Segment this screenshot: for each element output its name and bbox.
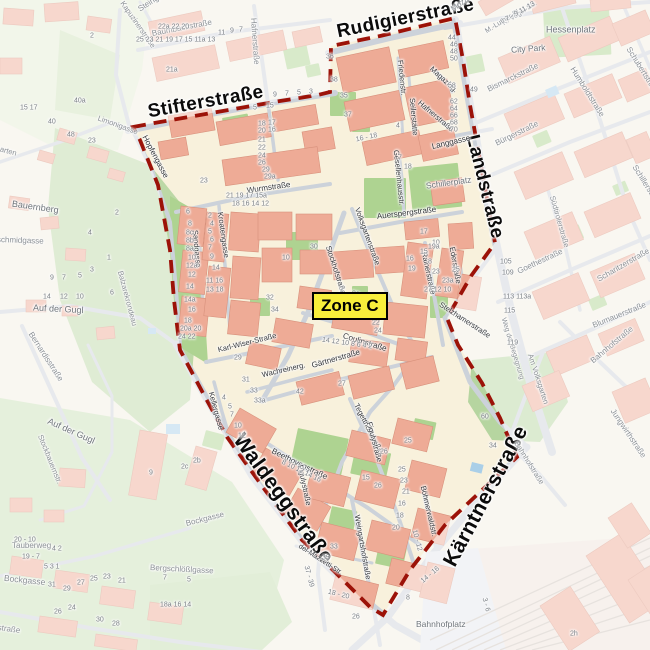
- house-number: 4: [396, 123, 400, 130]
- house-number: 8: [406, 595, 410, 602]
- street-label: Jungwirthstraße: [609, 408, 647, 460]
- house-number: 33: [250, 388, 258, 395]
- house-number: 17: [268, 120, 276, 127]
- street-label: schmidgasse: [0, 236, 44, 246]
- house-number: 11 16: [206, 278, 223, 285]
- street-label: Schillerstraße: [631, 164, 650, 210]
- house-number: 16 - 18: [355, 132, 378, 143]
- house-number: 27: [77, 580, 85, 587]
- street-label: Hafnerstraße: [249, 18, 260, 65]
- house-number: 2: [208, 213, 212, 220]
- street-label: Am Volksgarten: [526, 353, 549, 405]
- house-number: 7: [208, 245, 212, 252]
- street-label: Weingartshofstraße: [353, 514, 372, 580]
- house-number: 21 19 17 15a: [226, 193, 267, 200]
- house-number: 105: [500, 259, 512, 266]
- house-number: 14: [43, 294, 51, 301]
- street-label: Limonigasse: [97, 114, 139, 135]
- street-label: Balzarekrondeau: [116, 270, 138, 327]
- house-number: 33a: [254, 398, 266, 405]
- house-number: 21a: [166, 67, 178, 74]
- house-number: 5: [187, 577, 191, 584]
- house-number: 109: [502, 270, 514, 277]
- house-number: 49: [470, 87, 478, 94]
- house-number: 37: [344, 112, 352, 119]
- map-labels-layer: StifterstraßeRudigierstraßeLandstraßeWal…: [0, 0, 650, 650]
- house-number: 25 23 21 19 17 15 11a 13: [136, 37, 215, 44]
- house-number: 6: [186, 209, 190, 216]
- street-label: Goethestraße: [516, 248, 564, 276]
- street-label: Wachreinerg.: [261, 361, 306, 378]
- house-number: 31: [48, 582, 56, 589]
- house-number: 64: [450, 106, 458, 113]
- house-number: 6: [210, 237, 214, 244]
- house-number: 9: [273, 92, 277, 99]
- street-label: Auf der Gugl: [46, 417, 96, 446]
- house-number: 25: [452, 267, 460, 274]
- house-number: 7: [239, 27, 243, 34]
- house-number: 26: [380, 449, 388, 456]
- street-label: Scharitzerstraße: [596, 247, 650, 283]
- house-number: 5: [228, 404, 232, 411]
- house-number: 29: [234, 355, 242, 362]
- house-number: 2: [90, 33, 94, 40]
- house-number: 46: [450, 42, 458, 49]
- house-number: 9: [210, 254, 214, 261]
- house-number: 2h: [570, 631, 578, 638]
- house-number: 5: [253, 105, 257, 112]
- house-number: 13 18: [206, 287, 224, 294]
- house-number: 16: [398, 501, 406, 508]
- house-number: 68: [450, 120, 458, 127]
- house-number: 15: [266, 103, 274, 110]
- house-number: 14a: [184, 297, 196, 304]
- house-number: 8b: [186, 238, 194, 245]
- street-label: Stockbauernstr.: [37, 434, 63, 485]
- house-number: 22: [372, 320, 380, 327]
- house-number: 44: [448, 35, 456, 42]
- house-number: 1: [107, 255, 111, 262]
- house-number: 19: [408, 266, 416, 273]
- street-label: Steingasse: [137, 0, 175, 13]
- house-number: 9: [230, 28, 234, 35]
- house-number: 24 22: [178, 334, 196, 341]
- street-label: Stelzhamerstraße: [438, 301, 492, 340]
- house-number: 58: [448, 83, 456, 90]
- house-number: 7: [285, 91, 289, 98]
- house-number: 30: [96, 617, 104, 624]
- house-number: 60: [481, 414, 489, 421]
- house-number: 7: [163, 575, 167, 582]
- zone-c-label: Zone C: [312, 292, 388, 320]
- house-number: 6: [110, 290, 114, 297]
- house-number: 15: [420, 249, 428, 256]
- map-canvas: StifterstraßeRudigierstraßeLandstraßeWal…: [0, 0, 650, 650]
- house-number: 21: [402, 489, 410, 496]
- house-number: 62: [450, 99, 458, 106]
- street-label: Südtirolerstraße: [548, 195, 570, 248]
- house-number: 19 - 7: [22, 554, 40, 561]
- house-number: 23a: [442, 278, 454, 285]
- house-number: 5: [297, 90, 301, 97]
- house-number: 7: [62, 275, 66, 282]
- house-number: 18: [396, 513, 404, 520]
- house-number: 2c: [181, 464, 188, 471]
- house-number: 22: [258, 145, 266, 152]
- house-number: 10: [188, 255, 196, 262]
- house-number: 3: [309, 89, 313, 96]
- house-number: 14: [186, 284, 194, 291]
- house-number: 119: [507, 340, 518, 347]
- house-number: 25: [398, 467, 406, 474]
- street-label: Böhmerwaldstr.: [419, 485, 438, 537]
- house-number: 48: [450, 49, 458, 56]
- house-number: 18 - 20: [327, 589, 350, 601]
- street-label: Bürgerstraße: [494, 120, 539, 148]
- house-number: 9: [149, 470, 153, 477]
- house-number: 36: [326, 54, 334, 61]
- house-number: 14: [212, 265, 220, 272]
- house-number: 24: [258, 153, 266, 160]
- street-label: Auerspergstraße: [377, 206, 437, 221]
- street-label: Karl-Wiser-Straße: [217, 332, 277, 354]
- house-number: 17: [420, 229, 428, 236]
- house-number: 38: [330, 77, 338, 84]
- house-number: 24: [374, 328, 382, 335]
- house-number: 29: [63, 586, 71, 593]
- house-number: 23: [432, 269, 440, 276]
- house-number: 9: [50, 275, 54, 282]
- house-number: 23: [400, 478, 408, 485]
- house-number: 8: [188, 221, 192, 228]
- house-number: 25: [404, 438, 412, 445]
- house-number: 23: [200, 178, 208, 185]
- house-number: 14 - 16: [420, 565, 441, 584]
- house-number: 18: [258, 121, 266, 128]
- house-number: 27 12 10: [424, 287, 451, 294]
- house-number: 37 - 39: [303, 565, 315, 588]
- street-label: Bismarckstraße: [486, 62, 539, 94]
- house-number: 16: [268, 127, 276, 134]
- house-number: 24: [68, 605, 76, 612]
- house-number: 29a: [264, 174, 276, 181]
- house-number: 3 - 6: [481, 597, 491, 612]
- house-number: 12a: [186, 263, 198, 270]
- house-number: 66: [450, 113, 458, 120]
- house-number: 10 - 12: [411, 529, 423, 552]
- house-number: 15: [362, 475, 370, 482]
- house-number: 3: [90, 267, 94, 274]
- house-number: 16: [188, 307, 196, 314]
- house-number: 5: [208, 229, 212, 236]
- house-number: 4: [210, 221, 214, 228]
- street-label: Friedenstr.: [396, 60, 407, 96]
- house-number: 23: [103, 574, 111, 581]
- house-number: 19a: [428, 244, 440, 251]
- house-number: 26: [54, 609, 62, 616]
- house-number: 21: [118, 578, 126, 585]
- house-number: 7: [398, 155, 402, 162]
- house-number: 48: [67, 132, 75, 139]
- house-number: 4: [88, 230, 92, 237]
- house-number: 25: [90, 576, 98, 583]
- house-number: 8c: [186, 230, 193, 237]
- street-label: Magazing.: [428, 65, 459, 94]
- boundary-street-label: Landstraße: [463, 133, 507, 241]
- street-label: Bockgasse: [4, 574, 46, 587]
- boundary-street-label: Stifterstraße: [146, 82, 265, 121]
- house-number: 115: [504, 308, 515, 315]
- house-number: 20a 20: [180, 326, 201, 333]
- street-label: Bahnhofstraße: [589, 325, 634, 365]
- house-number: 4: [222, 395, 226, 402]
- house-number: 12: [60, 294, 68, 301]
- house-number: 35: [340, 93, 348, 100]
- house-number: 26: [258, 160, 266, 167]
- house-number: 34: [271, 307, 279, 314]
- house-number: 4 2: [52, 546, 62, 553]
- house-number: 34: [489, 443, 497, 450]
- street-label: Auf der Gugl: [33, 304, 84, 316]
- place-label: Schillerplatz: [425, 175, 472, 190]
- house-number: 40: [48, 119, 56, 126]
- house-number: 12: [238, 433, 246, 440]
- house-number: 26: [374, 483, 382, 490]
- street-label: Weg der Begegnung: [500, 317, 525, 380]
- house-number: 113 113a: [503, 294, 531, 301]
- house-number: 20 - 10: [14, 537, 36, 544]
- house-number: 33: [330, 544, 338, 551]
- house-number: 15 17: [20, 105, 38, 112]
- house-number: 7 - 9 11 13: [504, 0, 536, 23]
- house-number: 28: [112, 621, 120, 628]
- street-label: Bahnhofstraße: [513, 440, 545, 486]
- house-number: 18: [184, 318, 192, 325]
- house-number: 18: [404, 164, 412, 171]
- street-label: Bernardisstraße: [27, 331, 65, 383]
- house-number: 40a: [74, 98, 86, 105]
- place-label: Hessenplatz: [546, 26, 596, 35]
- house-number: 5: [78, 273, 82, 280]
- street-label: Hopfengasse: [140, 134, 169, 179]
- house-number: 70: [450, 127, 458, 134]
- house-number: 12: [188, 272, 196, 279]
- house-number: 20: [258, 128, 266, 135]
- place-label: Bahnhofplatz: [416, 620, 466, 629]
- house-number: 5 3 1: [44, 564, 60, 571]
- house-number: 26: [352, 614, 360, 621]
- street-label: Gärtnerstraße: [311, 348, 361, 369]
- house-number: 8a: [186, 246, 194, 253]
- house-number: 42: [296, 389, 304, 396]
- street-label: Schubertstraße: [625, 46, 650, 97]
- house-number: 18a 16 14: [160, 602, 191, 609]
- house-number: 20: [392, 525, 400, 532]
- street-label: Ziegeleistraße: [0, 620, 21, 635]
- house-number: 18 16 14 12: [232, 201, 269, 208]
- house-number: 23: [88, 138, 96, 145]
- house-number: 22a 22 20: [158, 24, 189, 31]
- house-number: 16: [406, 256, 414, 263]
- house-number: 50: [450, 56, 458, 63]
- street-label: Blumauerstraße: [592, 301, 648, 330]
- street-label: Bergschlößlgasse: [150, 564, 214, 575]
- street-label: Kroatengasse: [216, 211, 230, 258]
- house-number: 8: [428, 259, 432, 266]
- house-number: 2: [115, 210, 119, 217]
- house-number: 27: [338, 381, 346, 388]
- house-number: 10: [76, 294, 84, 301]
- house-number: 31: [242, 377, 250, 384]
- street-label: Bauernberg: [11, 200, 59, 215]
- house-number: 2b: [193, 458, 201, 465]
- house-number: 29: [262, 167, 270, 174]
- house-number: 10: [282, 255, 290, 262]
- house-number: 32: [266, 295, 274, 302]
- house-number: 21: [258, 137, 266, 144]
- place-label: City Park: [511, 43, 546, 54]
- house-number: 7: [230, 412, 234, 419]
- house-number: 10: [234, 423, 242, 430]
- street-label: Bockgasse: [185, 511, 225, 528]
- street-label: garten: [0, 144, 18, 157]
- house-number: 30: [310, 244, 318, 251]
- house-number: 35: [322, 555, 330, 562]
- house-number: 11: [218, 30, 225, 37]
- street-label: Humboldtstraße: [569, 66, 606, 119]
